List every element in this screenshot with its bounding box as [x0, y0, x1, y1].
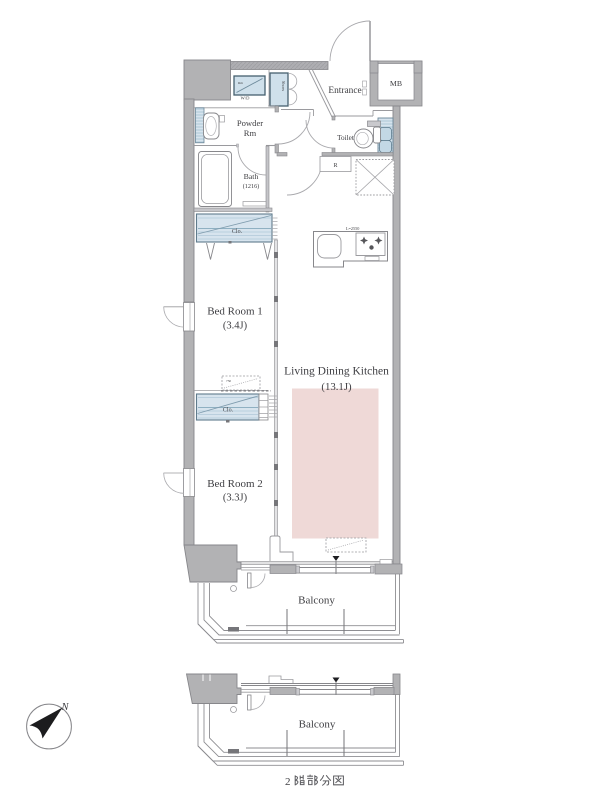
svg-text:Shoes: Shoes	[281, 81, 286, 91]
svg-text:Bed Room 1: Bed Room 1	[207, 306, 263, 318]
svg-text:Toilet: Toilet	[337, 134, 354, 142]
svg-text:2: 2	[285, 776, 291, 788]
svg-text:L=2550: L=2550	[346, 226, 359, 231]
svg-text:Clo.: Clo.	[223, 408, 234, 414]
svg-text:Clo.: Clo.	[232, 229, 243, 235]
svg-text:Living Dining Kitchen: Living Dining Kitchen	[284, 366, 389, 378]
svg-text:W/D: W/D	[241, 96, 251, 101]
svg-text:Rm: Rm	[244, 128, 257, 138]
svg-text:Powder: Powder	[237, 118, 263, 128]
svg-text:(13.1J): (13.1J)	[321, 381, 352, 393]
svg-text:Balcony: Balcony	[298, 595, 335, 607]
svg-text:(3.3J): (3.3J)	[223, 493, 248, 504]
svg-text:Rm: Rm	[238, 81, 243, 85]
svg-text:Bed Room 2: Bed Room 2	[207, 478, 263, 490]
svg-text:Bath: Bath	[244, 172, 259, 181]
svg-text:(3.4J): (3.4J)	[223, 321, 248, 332]
svg-text:750: 750	[226, 379, 231, 383]
svg-text:MB: MB	[390, 79, 402, 88]
svg-text:N: N	[61, 702, 70, 713]
svg-text:Entrance: Entrance	[328, 86, 361, 96]
svg-text:(1216): (1216)	[243, 183, 260, 190]
svg-text:R: R	[333, 163, 337, 169]
svg-text:Balcony: Balcony	[299, 719, 336, 731]
